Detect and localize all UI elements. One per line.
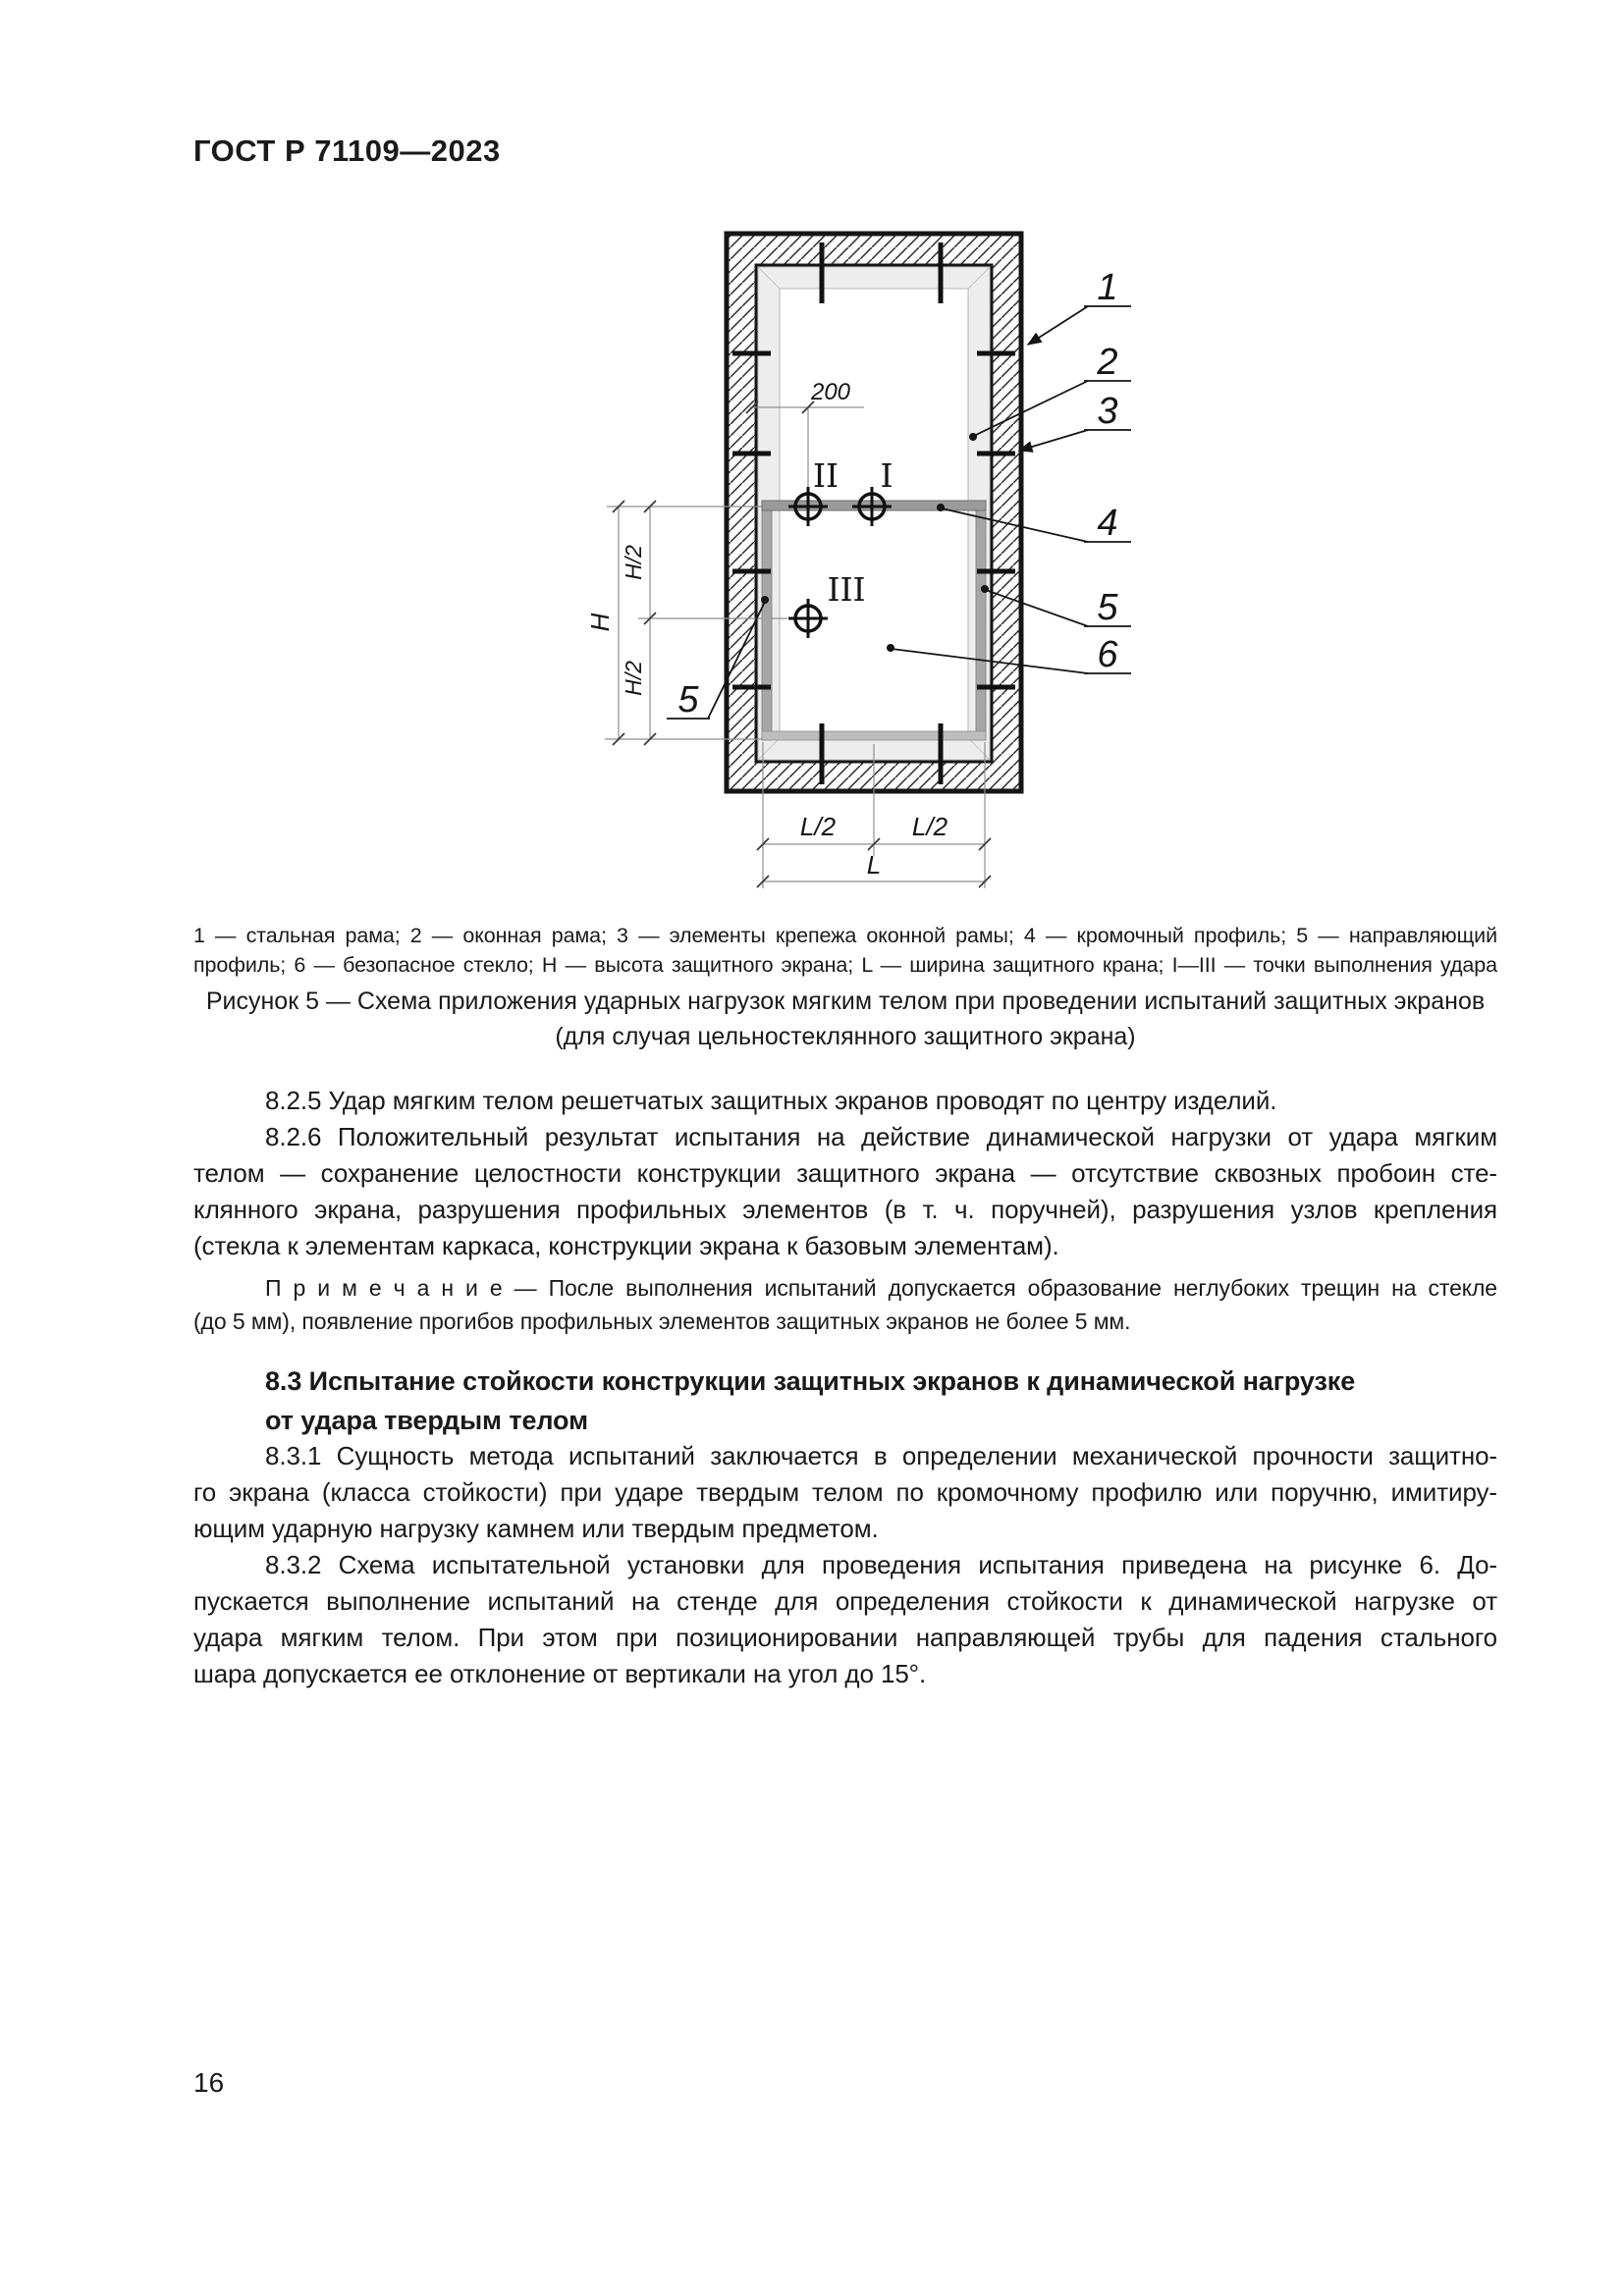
paragraph-line: клянного экрана, разрушения профильных э… xyxy=(193,1192,1497,1228)
point-label-III: III xyxy=(827,570,865,609)
callout-2: 2 xyxy=(1096,342,1117,383)
dim-h-half-bottom: H/2 xyxy=(621,661,646,696)
document-code: ГОСТ Р 71109—2023 xyxy=(193,133,501,169)
paragraph-line: пускается выполнение испытаний на стенде… xyxy=(193,1583,1497,1620)
page-number: 16 xyxy=(193,2067,224,2099)
callout-3: 3 xyxy=(1097,391,1117,432)
document-page: ГОСТ Р 71109—2023 xyxy=(0,0,1624,2296)
paragraph-line: 8.3.2 Схема испытательной установки для … xyxy=(193,1547,1497,1583)
paragraph-line: го экрана (класса стойкости) при ударе т… xyxy=(193,1474,1497,1511)
dim-h-half-top: H/2 xyxy=(621,545,646,580)
window-frame xyxy=(758,267,990,760)
callout-5-right: 5 xyxy=(1097,587,1118,628)
section-8-3: 8.3.1 Сущность метода испытаний заключае… xyxy=(193,1438,1497,1692)
callout-4: 4 xyxy=(1097,503,1117,544)
figure-caption: Рисунок 5 — Схема приложения ударных наг… xyxy=(193,984,1497,1054)
note-line: П р и м е ч а н и е — После выполнения и… xyxy=(193,1271,1497,1305)
dim-h: H xyxy=(585,613,615,631)
paragraph-line: удара мягким телом. При этом при позицио… xyxy=(193,1620,1497,1656)
point-label-II: II xyxy=(813,456,839,495)
dim-200: 200 xyxy=(810,379,851,405)
paragraph-line: шара допускается ее отклонение от вертик… xyxy=(193,1656,1497,1692)
paragraph-line: 8.2.6 Положительный результат испытания … xyxy=(193,1119,1497,1155)
note-line: (до 5 мм), появление прогибов профильных… xyxy=(193,1305,1497,1338)
note-block: П р и м е ч а н и е — После выполнения и… xyxy=(193,1271,1497,1338)
heading-line: 8.3 Испытание стойкости конструкции защи… xyxy=(193,1362,1497,1401)
figure-5-diagram: II I III 200 H/2 H H/2 L/2 L/2 L 1 xyxy=(569,182,1159,928)
bottom-profile-strip xyxy=(762,731,986,740)
callout-1: 1 xyxy=(1097,267,1117,308)
caption-line: Рисунок 5 — Схема приложения ударных наг… xyxy=(193,984,1497,1019)
paragraph-line: телом — сохранение целостности конструкц… xyxy=(193,1155,1497,1192)
guide-profile-right xyxy=(976,502,986,740)
guide-profile-left xyxy=(762,502,772,740)
caption-line: (для случая цельностеклянного защитного … xyxy=(193,1019,1497,1054)
paragraph-line: (стекла к элементам каркаса, конструкции… xyxy=(193,1228,1497,1264)
figure-legend: 1 — стальная рама; 2 — оконная рама; 3 —… xyxy=(193,921,1497,980)
paragraph-line: ющим ударную нагрузку камнем или твердым… xyxy=(193,1511,1497,1547)
paragraph-line: 8.3.1 Сущность метода испытаний заключае… xyxy=(193,1438,1497,1474)
callout-5-left: 5 xyxy=(677,679,699,721)
dim-l-half-right: L/2 xyxy=(912,812,948,841)
heading-line: от удара твердым телом xyxy=(193,1401,1497,1440)
dim-l-half-left: L/2 xyxy=(800,812,837,841)
section-8-2: 8.2.5 Удар мягким телом решетчатых защит… xyxy=(193,1083,1497,1264)
legend-line: профиль; 6 — безопасное стекло; Н — высо… xyxy=(193,950,1497,980)
callout-6: 6 xyxy=(1097,634,1118,675)
dim-l: L xyxy=(867,850,881,880)
legend-line: 1 — стальная рама; 2 — оконная рама; 3 —… xyxy=(193,921,1497,950)
section-heading-8-3: 8.3 Испытание стойкости конструкции защи… xyxy=(193,1362,1497,1440)
paragraph-line: 8.2.5 Удар мягким телом решетчатых защит… xyxy=(193,1083,1497,1119)
point-label-I: I xyxy=(880,456,893,495)
